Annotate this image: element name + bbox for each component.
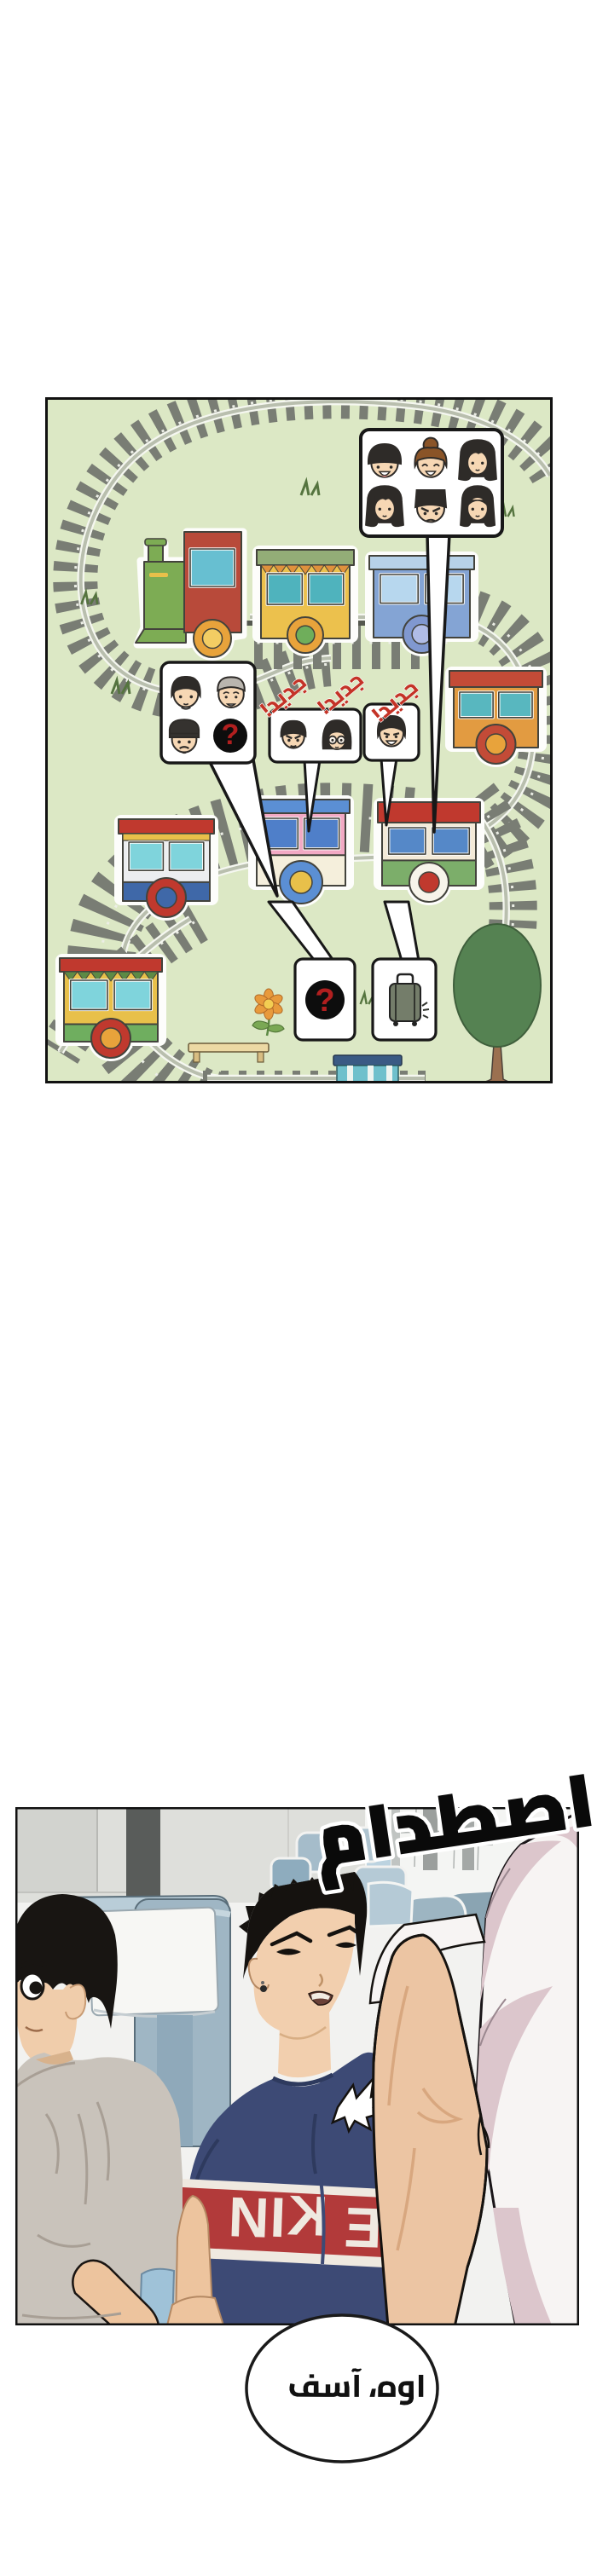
svg-text:?: ? bbox=[222, 719, 240, 751]
svg-text:I: I bbox=[269, 2186, 287, 2250]
svg-text:N: N bbox=[228, 2185, 270, 2250]
svg-text:?: ? bbox=[315, 983, 334, 1019]
